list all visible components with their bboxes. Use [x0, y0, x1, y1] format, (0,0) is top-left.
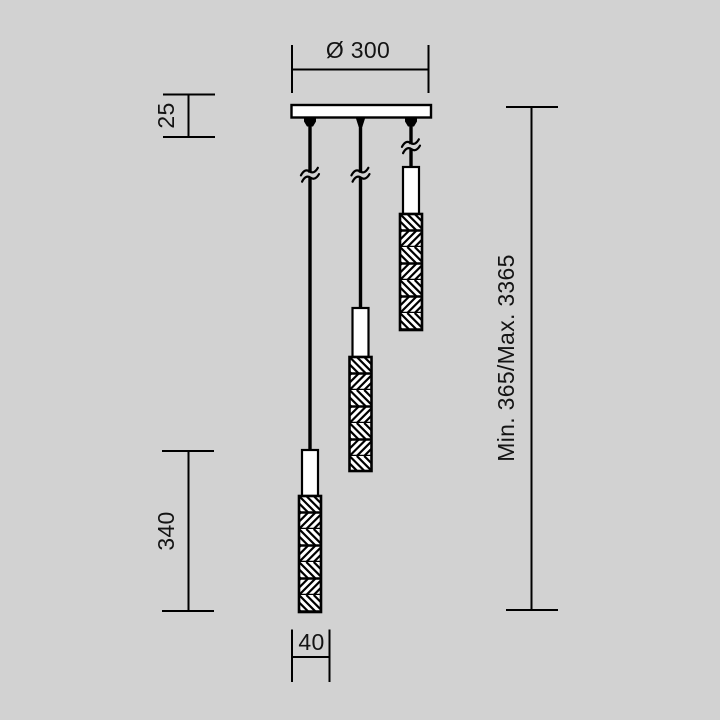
dim-shade-diameter-label: 40 — [298, 629, 324, 655]
dim-shade-length-label: 340 — [153, 511, 179, 550]
dim-canopy-height-label: 25 — [153, 102, 179, 128]
pendant-stem — [302, 450, 318, 496]
pendant-right — [400, 167, 422, 330]
dim-suspension-range-label: Min. 365/Max. 3365 — [493, 254, 519, 461]
pendant-crystal-shade — [400, 214, 422, 330]
ceiling-canopy — [292, 105, 432, 118]
pendant-stem — [353, 308, 369, 357]
pendant-crystal-shade — [350, 357, 372, 471]
pendant-stem — [403, 167, 419, 214]
dim-canopy-diameter-label: Ø 300 — [326, 37, 390, 63]
drawing-canvas: Ø 300 25 — [0, 0, 720, 720]
pendant-lamp-dimension-diagram: Ø 300 25 — [0, 0, 720, 720]
pendant-left — [299, 450, 321, 612]
pendant-middle — [350, 308, 372, 471]
pendant-crystal-shade — [299, 496, 321, 612]
